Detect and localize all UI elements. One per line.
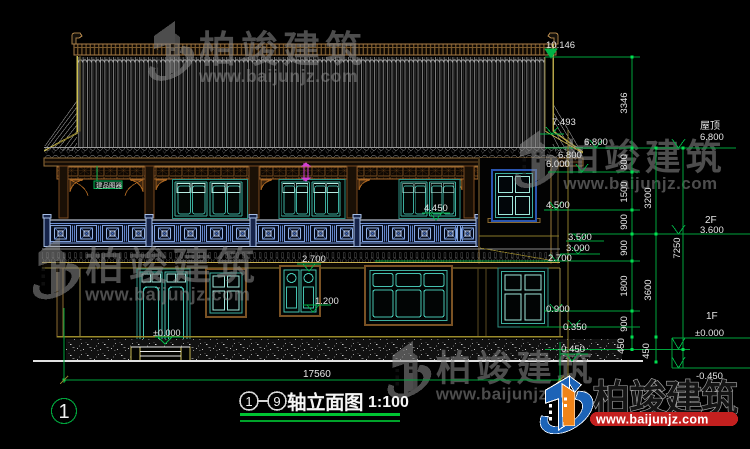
svg-text:450: 450	[616, 338, 627, 354]
svg-text:0.350: 0.350	[563, 322, 587, 333]
svg-text:建品图器: 建品图器	[96, 181, 123, 190]
svg-text:1800: 1800	[619, 275, 630, 296]
svg-text:4.450: 4.450	[424, 203, 448, 214]
svg-text:0.900: 0.900	[546, 304, 570, 315]
svg-text:轴立面图: 轴立面图	[287, 391, 363, 414]
svg-text:800: 800	[619, 154, 630, 170]
svg-text:1: 1	[245, 394, 252, 409]
svg-text:1F: 1F	[706, 311, 718, 322]
svg-text:±0.000: ±0.000	[695, 328, 724, 339]
svg-text:1:100: 1:100	[368, 394, 409, 411]
svg-text:7.493: 7.493	[552, 117, 576, 128]
svg-text:3200: 3200	[643, 187, 654, 208]
svg-text:900: 900	[619, 214, 630, 230]
svg-text:-0.450: -0.450	[558, 344, 585, 355]
svg-text:3346: 3346	[619, 92, 630, 113]
svg-text:7250: 7250	[672, 237, 683, 258]
svg-text:3.600: 3.600	[700, 225, 724, 236]
svg-text:1: 1	[58, 401, 69, 423]
svg-text:4.500: 4.500	[546, 200, 570, 211]
svg-text:屋顶: 屋顶	[700, 120, 720, 132]
svg-text:3.500: 3.500	[568, 232, 592, 243]
svg-text:1.200: 1.200	[315, 296, 339, 307]
svg-text:6.000: 6.000	[546, 159, 570, 170]
svg-text:450: 450	[641, 343, 652, 359]
svg-text:900: 900	[619, 240, 630, 256]
svg-text:900: 900	[619, 316, 630, 332]
svg-text:2.700: 2.700	[548, 253, 572, 264]
svg-text:10.146: 10.146	[546, 40, 575, 51]
svg-text:www.baijunjz.com: www.baijunjz.com	[595, 413, 709, 427]
svg-text:6.800: 6.800	[700, 132, 724, 143]
svg-text:6.800: 6.800	[584, 137, 608, 148]
svg-text:3600: 3600	[643, 279, 654, 300]
svg-text:2.700: 2.700	[302, 254, 326, 265]
svg-text:9: 9	[273, 394, 280, 409]
svg-text:±0.000: ±0.000	[153, 328, 180, 338]
svg-text:17560: 17560	[303, 369, 331, 380]
svg-text:1500: 1500	[619, 181, 630, 202]
